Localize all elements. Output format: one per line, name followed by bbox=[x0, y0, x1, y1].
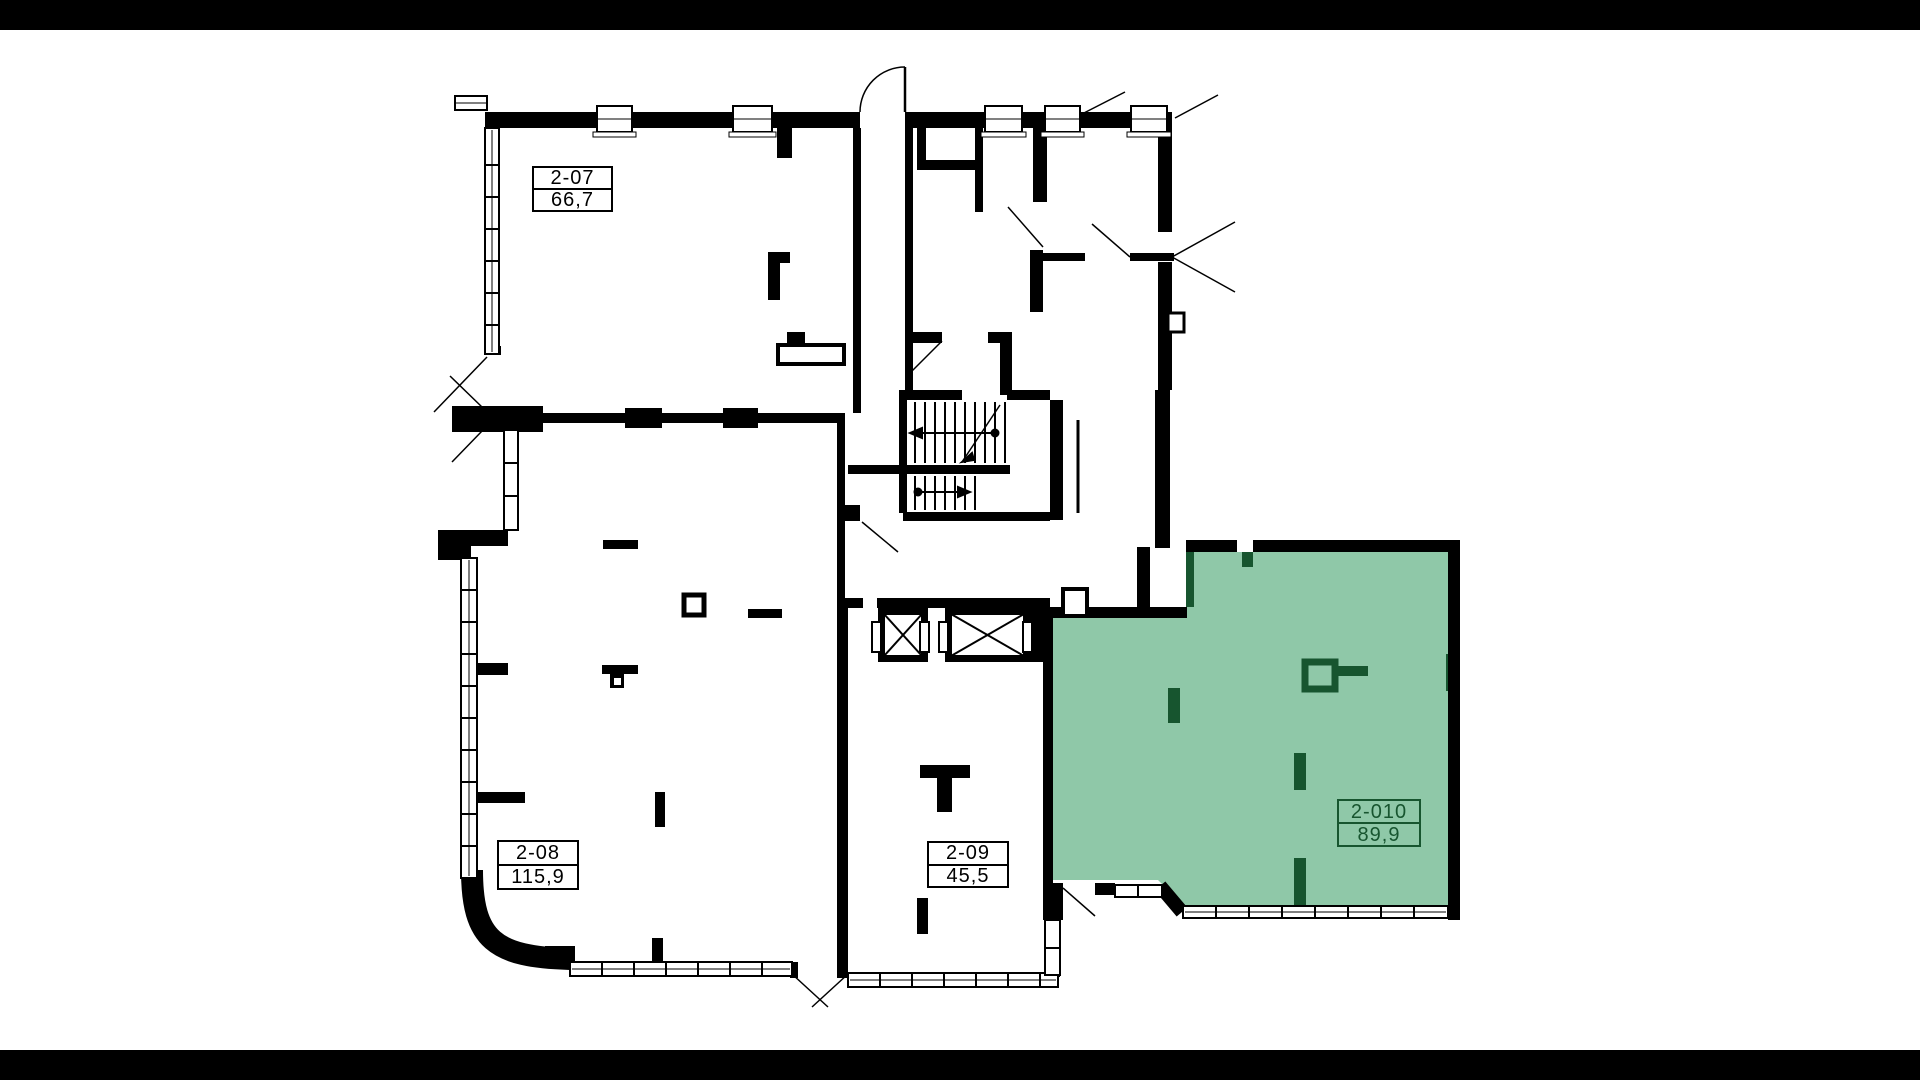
unit-id: 2-08 bbox=[499, 842, 577, 866]
duct-box bbox=[1063, 589, 1087, 616]
elevator-shafts bbox=[872, 614, 1032, 656]
unit-id: 2-09 bbox=[929, 843, 1007, 866]
unit-id: 2-07 bbox=[534, 168, 611, 190]
unit-area: 115,9 bbox=[499, 866, 577, 888]
unit-label-2-07[interactable]: 2-07 66,7 bbox=[532, 166, 613, 212]
unit-area: 66,7 bbox=[534, 190, 611, 210]
unit-id: 2-010 bbox=[1339, 801, 1419, 824]
floorplan-page: 2-07 66,7 2-08 115,9 2-09 45,5 2-010 89,… bbox=[0, 0, 1920, 1080]
unit-label-2-010[interactable]: 2-010 89,9 bbox=[1337, 799, 1421, 847]
counter-2-07 bbox=[778, 345, 844, 364]
pilaster-box bbox=[1168, 313, 1184, 332]
unit-label-2-09[interactable]: 2-09 45,5 bbox=[927, 841, 1009, 888]
window-sills bbox=[593, 132, 1171, 137]
t-element-notch bbox=[614, 678, 621, 685]
unit-label-2-08[interactable]: 2-08 115,9 bbox=[497, 840, 579, 890]
unit-2-010-highlight[interactable] bbox=[1053, 552, 1448, 906]
unit-area: 89,9 bbox=[1339, 824, 1419, 845]
column-2-08 bbox=[684, 595, 704, 615]
floor-plan bbox=[0, 0, 1920, 1080]
unit-area: 45,5 bbox=[929, 866, 1007, 887]
